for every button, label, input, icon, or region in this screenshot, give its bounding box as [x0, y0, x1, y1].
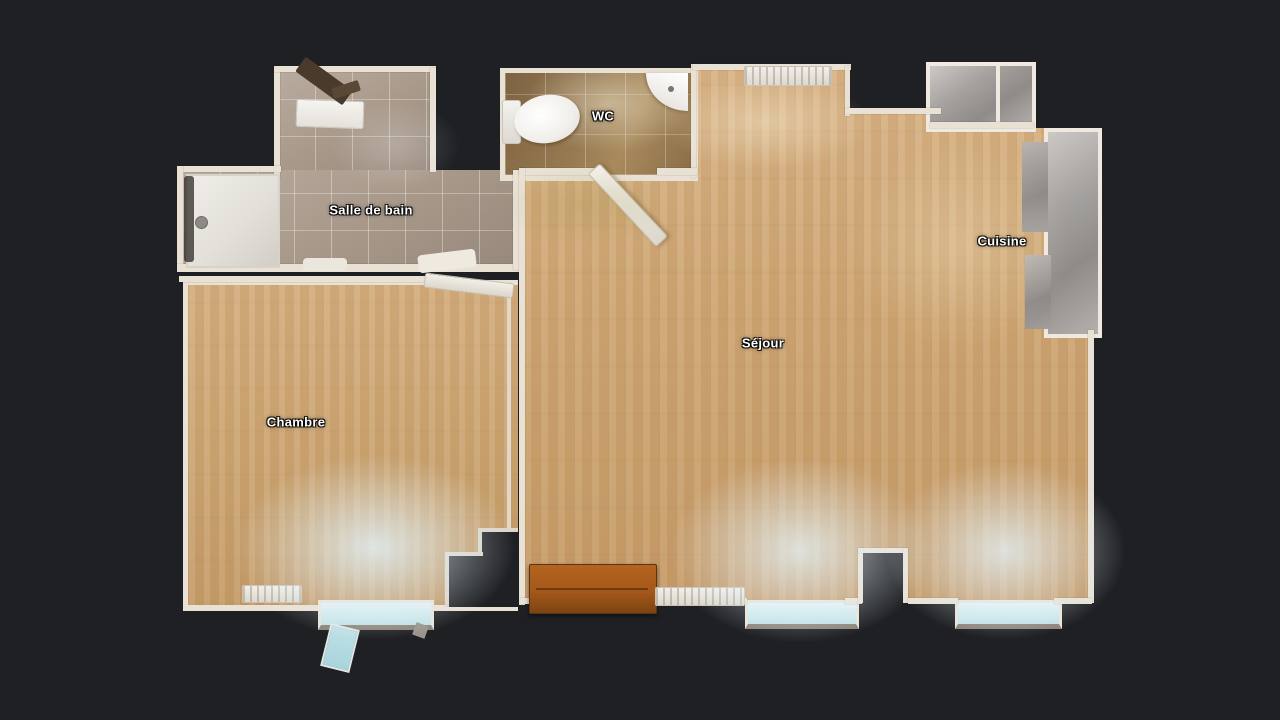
wall	[845, 108, 941, 114]
floorplan: Salle de bain WC Chambre Séjour Cuisine	[0, 0, 1280, 720]
background-step	[445, 552, 483, 607]
wall	[177, 166, 183, 272]
wall	[430, 68, 436, 172]
alcove-divider	[996, 66, 1000, 122]
radiator	[744, 66, 832, 86]
background-notch	[862, 552, 908, 603]
wall	[274, 66, 280, 178]
wall	[908, 598, 958, 604]
shower-drain	[195, 216, 208, 229]
room-label-salle-de-bain: Salle de bain	[329, 203, 412, 218]
chambre-right-wall	[507, 282, 511, 530]
kitchen-counter	[1044, 128, 1102, 338]
radiator	[655, 587, 745, 606]
room-label-chambre: Chambre	[267, 415, 325, 430]
wall	[179, 166, 281, 172]
room-label-cuisine: Cuisine	[977, 234, 1026, 249]
wall	[519, 168, 525, 605]
wall	[1054, 598, 1092, 604]
wall	[691, 64, 696, 178]
kitchen-appliance	[1022, 142, 1048, 232]
window-bay-sejour-right	[955, 600, 1062, 629]
wall	[903, 548, 908, 603]
door-threshold	[303, 258, 347, 271]
background-step	[478, 528, 518, 607]
background-mask	[1032, 64, 1092, 128]
window-bay-sejour-left	[745, 600, 859, 629]
room-label-sejour: Séjour	[742, 336, 784, 351]
bathroom-vanity-sink	[296, 99, 365, 129]
wall	[1088, 330, 1094, 603]
radiator	[242, 585, 302, 603]
wall	[858, 548, 863, 603]
shower-glass-shadow	[184, 176, 194, 262]
chest-seam	[536, 588, 648, 590]
wall	[657, 168, 697, 175]
wall	[179, 276, 429, 282]
window-shutter-artifact	[320, 623, 360, 673]
wall-kitchen-curb	[930, 122, 1034, 128]
room-label-wc: WC	[592, 109, 614, 124]
kitchen-appliance	[1025, 255, 1051, 329]
sink-drain	[668, 86, 674, 92]
wall	[858, 548, 908, 553]
